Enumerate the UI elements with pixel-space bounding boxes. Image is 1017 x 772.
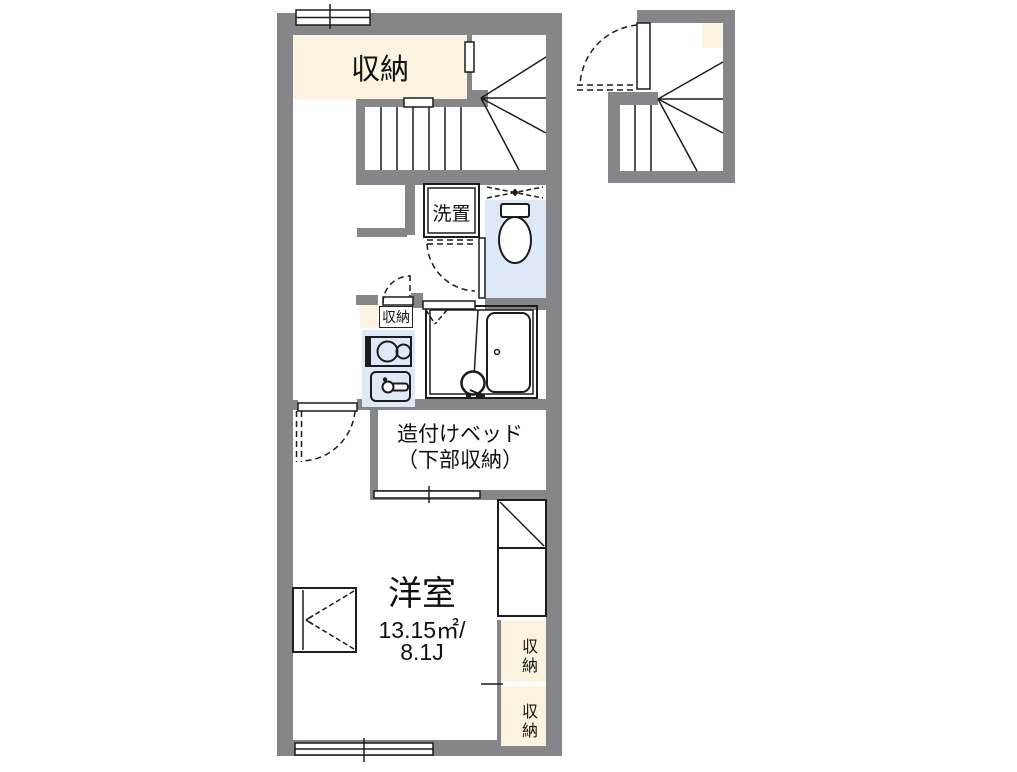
built-in-bed-label-line1: 造付けベッド bbox=[372, 422, 548, 448]
entry-stairs bbox=[577, 10, 735, 183]
built-in-bed-label-line2: （下部収納） bbox=[372, 448, 548, 474]
storage-small-label: 収納 bbox=[379, 306, 413, 328]
toilet-window bbox=[485, 185, 546, 200]
top-window bbox=[296, 4, 370, 29]
floor-plan-drawing bbox=[0, 0, 1017, 772]
storage-small-area bbox=[360, 305, 378, 328]
floor-plan: 収納 洗置 収納 造付けベッド （下部収納） 洋室 13.15㎡/ 8.1J 収… bbox=[0, 0, 1017, 772]
closet-upper-label: 収納 bbox=[511, 630, 539, 684]
stair-landing-marker bbox=[404, 98, 433, 107]
bathroom-folding-door bbox=[423, 301, 475, 324]
entry-door bbox=[577, 23, 650, 90]
toilet-door bbox=[427, 238, 485, 298]
toilet-icon bbox=[499, 204, 531, 263]
built-in-bed-label: 造付けベッド （下部収納） bbox=[372, 422, 548, 474]
storage-top-label: 収納 bbox=[293, 46, 467, 88]
closet-lower-label: 収納 bbox=[511, 695, 539, 749]
storage-small-door bbox=[383, 275, 413, 305]
room-area-tatami-label: 8.1J bbox=[342, 639, 502, 666]
kitchen-counter bbox=[362, 330, 415, 407]
stair-void bbox=[498, 500, 546, 616]
entry-storage-area bbox=[702, 23, 722, 48]
bed-opening bbox=[374, 486, 480, 503]
laundry-label: 洗置 bbox=[424, 199, 479, 226]
room-name-label: 洋室 bbox=[342, 566, 502, 615]
bathtub-icon bbox=[487, 313, 530, 392]
bath-stool-icon bbox=[462, 372, 486, 400]
room-door bbox=[297, 403, 358, 462]
bathroom bbox=[426, 306, 537, 399]
